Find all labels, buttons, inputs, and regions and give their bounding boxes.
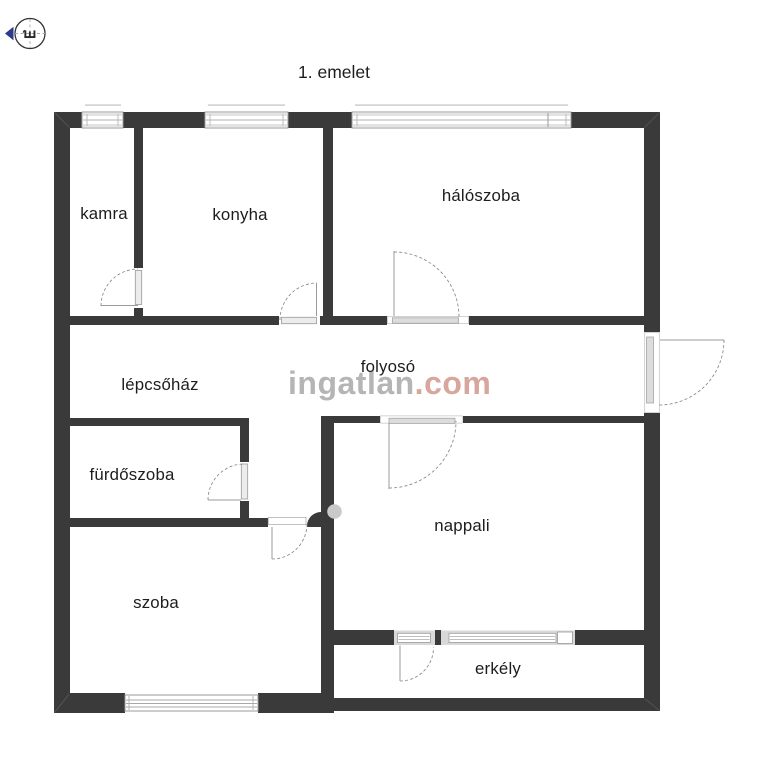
- svg-text:szoba: szoba: [133, 593, 179, 612]
- svg-text:konyha: konyha: [212, 205, 268, 224]
- svg-text:fürdőszoba: fürdőszoba: [89, 465, 174, 484]
- svg-text:lépcsőház: lépcsőház: [121, 375, 198, 394]
- svg-text:nappali: nappali: [434, 516, 490, 535]
- svg-text:hálószoba: hálószoba: [442, 186, 521, 205]
- svg-text:folyosó: folyosó: [361, 357, 416, 376]
- svg-text:kamra: kamra: [80, 204, 128, 223]
- svg-text:1. emelet: 1. emelet: [298, 62, 370, 82]
- svg-text:erkély: erkély: [475, 659, 521, 678]
